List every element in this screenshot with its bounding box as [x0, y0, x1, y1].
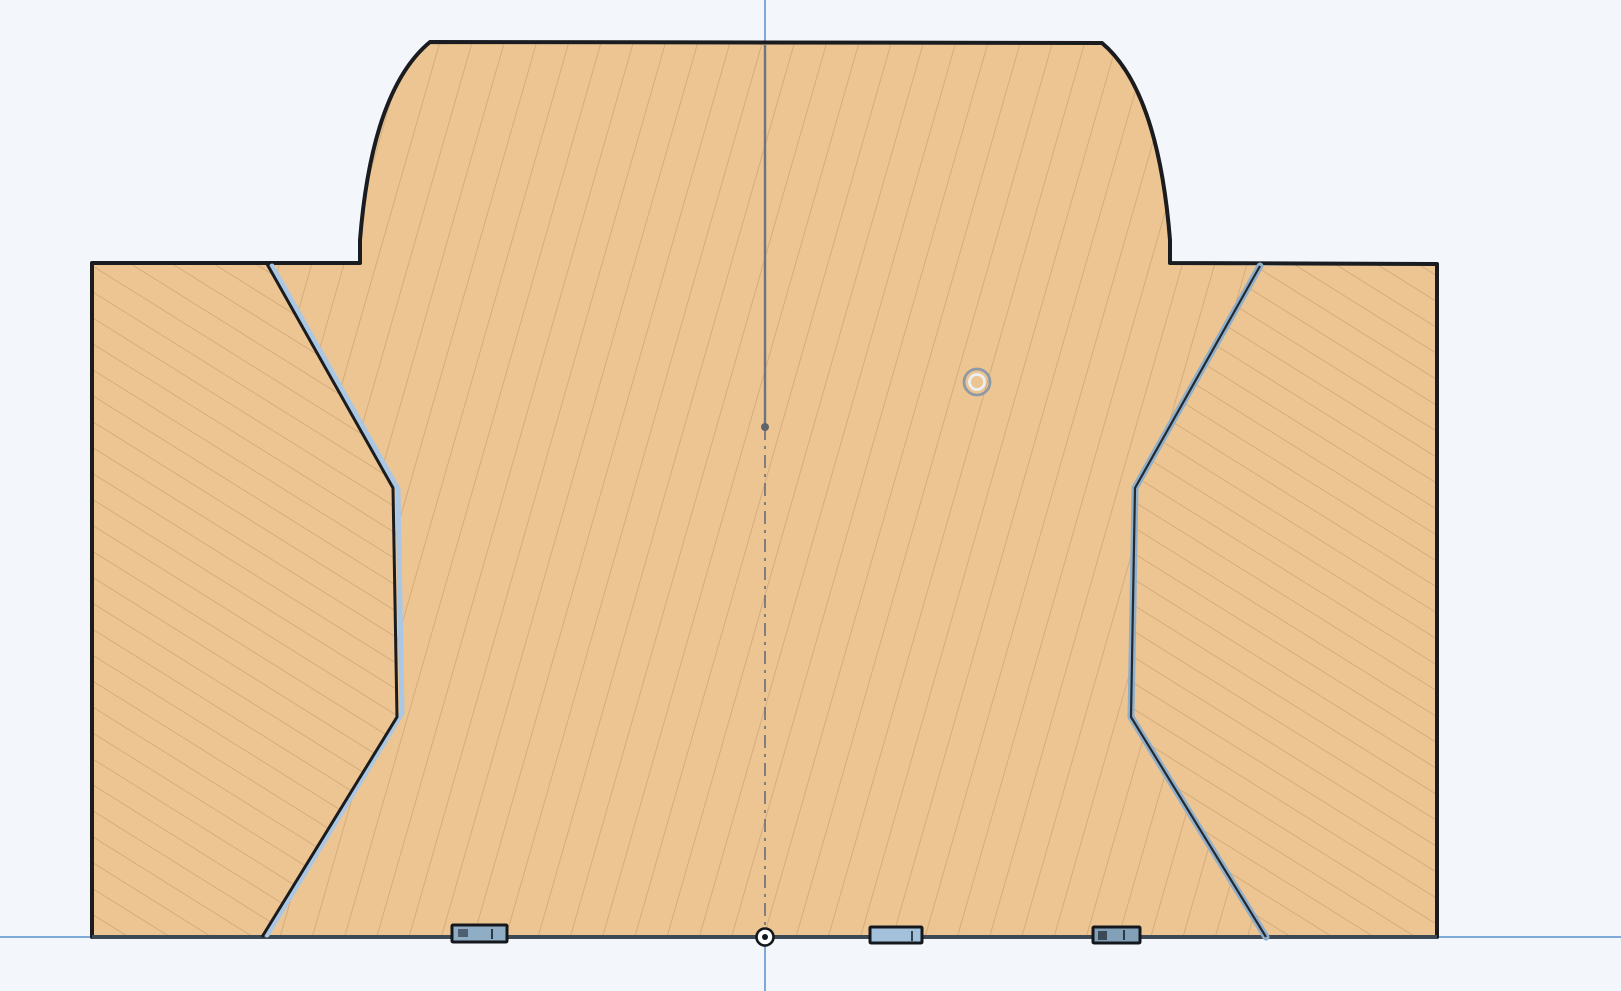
centerline-point[interactable]	[761, 423, 769, 431]
cad-viewport-wrap	[0, 0, 1621, 991]
bottom-tab-middle[interactable]	[870, 927, 922, 943]
origin-marker[interactable]	[757, 929, 774, 946]
bottom-tab-left[interactable]	[452, 925, 507, 942]
bottom-tab-right[interactable]	[1093, 927, 1140, 943]
cad-viewport[interactable]	[0, 0, 1621, 991]
